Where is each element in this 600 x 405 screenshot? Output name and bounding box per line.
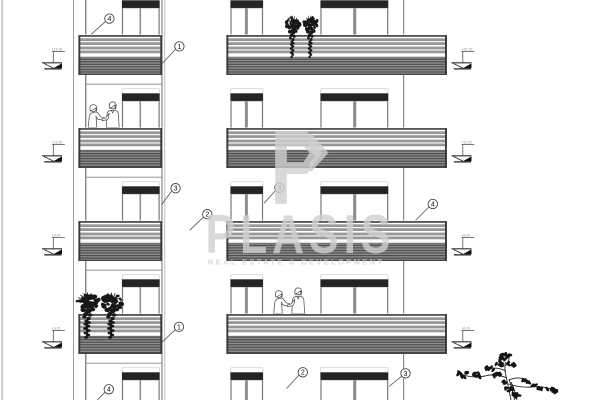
svg-text:3: 3: [404, 371, 408, 378]
svg-text:1: 1: [177, 324, 181, 331]
svg-text:4: 4: [107, 387, 111, 394]
svg-text:4: 4: [107, 16, 111, 23]
svg-text:3: 3: [174, 186, 178, 193]
svg-text:PLASIS: PLASIS: [206, 204, 396, 266]
svg-text:2: 2: [301, 370, 305, 377]
svg-text:1: 1: [177, 44, 181, 51]
svg-text:4: 4: [431, 201, 435, 208]
